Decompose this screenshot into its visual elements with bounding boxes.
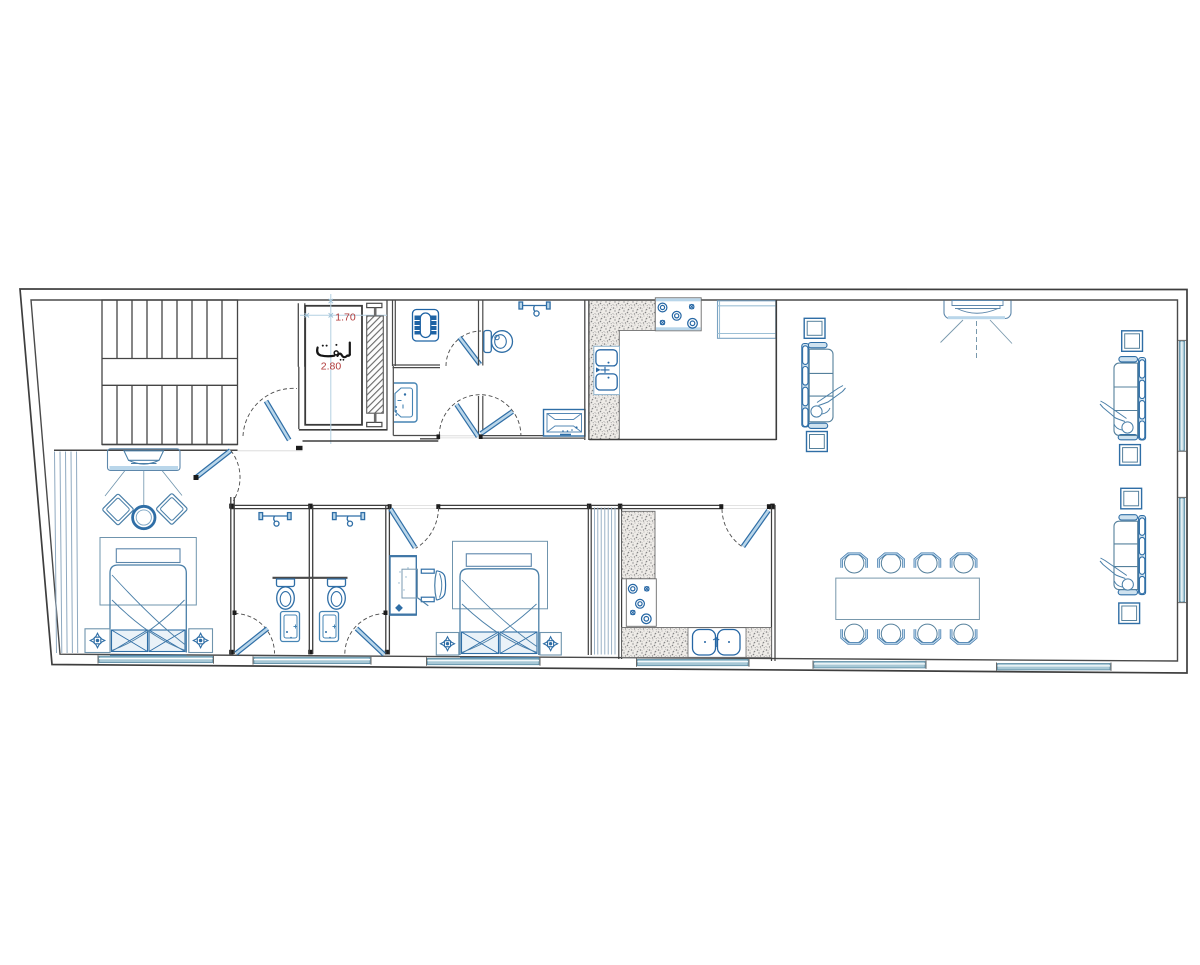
svg-text:1.70: 1.70 <box>335 312 356 324</box>
svg-text:2.80: 2.80 <box>321 361 342 373</box>
